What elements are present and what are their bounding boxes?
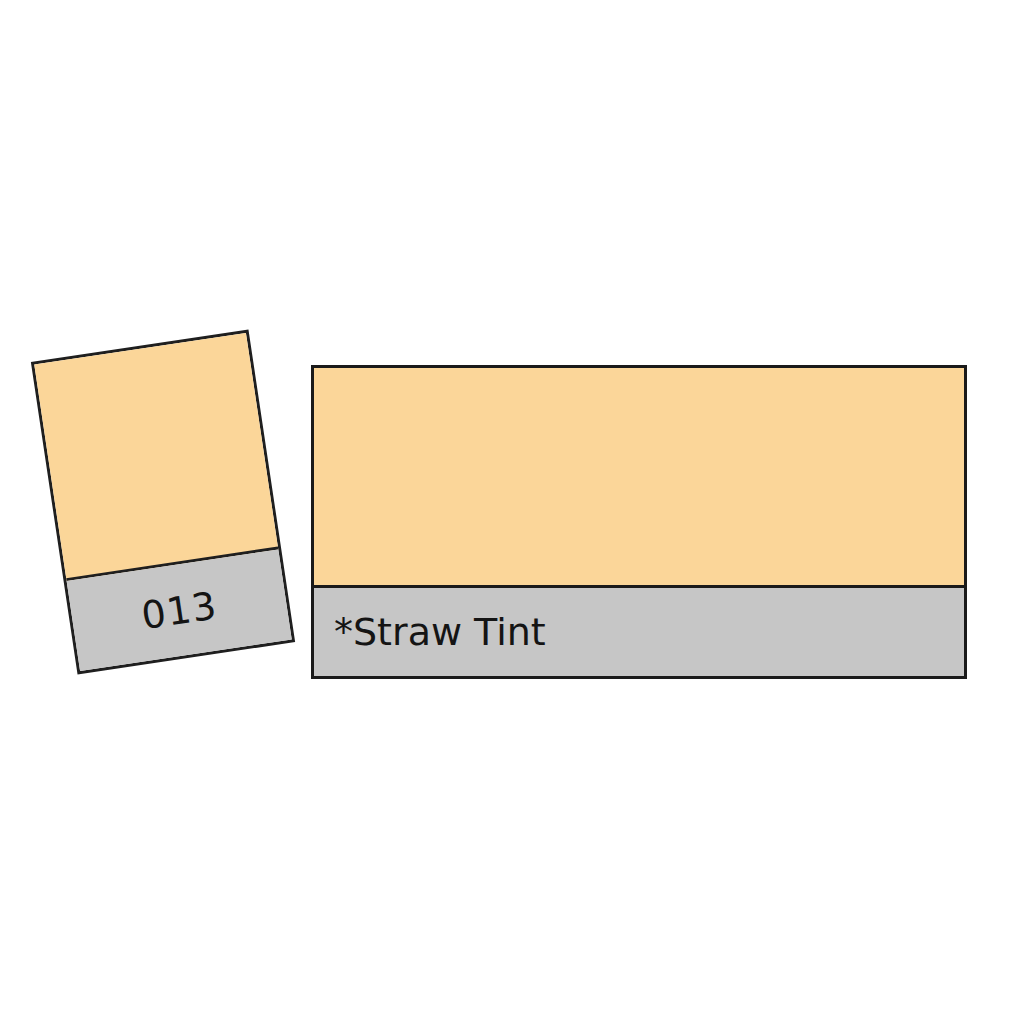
filter-swatch-card: 013 bbox=[31, 329, 295, 674]
color-preview-bar: *Straw Tint bbox=[311, 365, 967, 679]
filter-name-label: *Straw Tint bbox=[334, 613, 546, 651]
bar-name-band: *Straw Tint bbox=[314, 588, 964, 676]
swatch-color-area bbox=[34, 333, 278, 581]
filter-code-label: 013 bbox=[139, 586, 219, 635]
bar-color-area bbox=[314, 368, 964, 588]
